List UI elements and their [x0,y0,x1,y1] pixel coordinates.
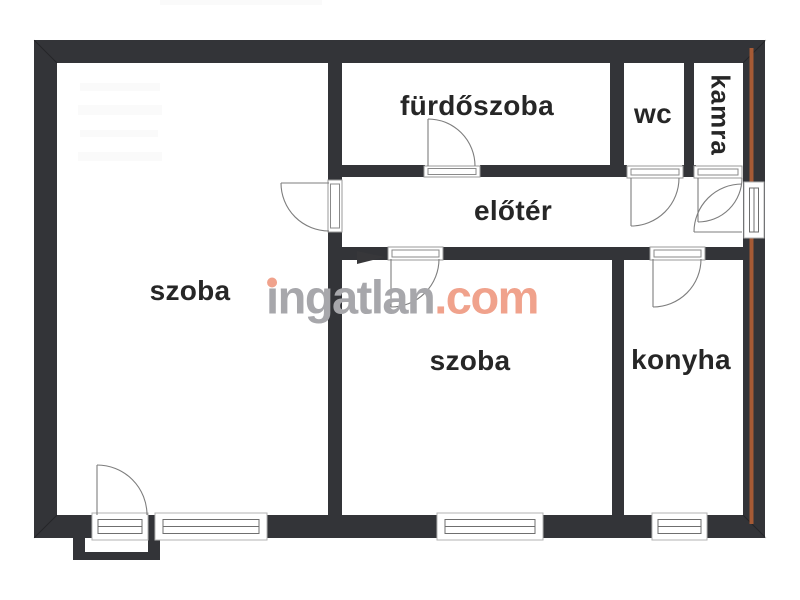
door-frame-szoba-2 [388,247,443,260]
door-frame-kamra [694,166,742,178]
balcony-door [92,465,148,540]
room-label-eloter: előtér [474,195,552,227]
threshold-wedge [357,251,385,264]
watermark-brand-text: ngatlan [278,271,435,324]
room-label-furdoszoba: fürdőszoba [400,90,554,122]
scan-artifacts [78,0,322,161]
room-label-szoba-2: szoba [430,345,511,377]
door-swing-wc [631,178,679,226]
watermark-tld-text: .com [434,271,538,324]
door-frame-szoba-1 [328,180,342,232]
door-swing-szoba-1 [281,183,329,231]
watermark-i-dot-icon [267,278,277,288]
door-frame-konyha [650,247,705,260]
watermark-letter-i: ı [266,274,278,321]
room-label-szoba-1: szoba [150,275,231,307]
window-szoba-2 [437,513,543,540]
door-frame-wc [627,166,683,178]
door-frame-furdoszoba [424,166,480,177]
room-label-kamra: kamra [705,74,736,156]
window-szoba-1 [155,513,267,540]
entrance-door [694,182,764,238]
room-label-wc: wc [634,98,672,130]
watermark-ingatlan-com: ıngatlan.com [266,274,538,321]
floorplan-canvas: szoba fürdőszoba wc kamra előtér szoba k… [0,0,800,600]
room-label-konyha: konyha [631,344,731,376]
window-konyha [652,513,707,540]
door-swing-furdoszoba [428,119,475,166]
door-swing-konyha [653,259,701,307]
